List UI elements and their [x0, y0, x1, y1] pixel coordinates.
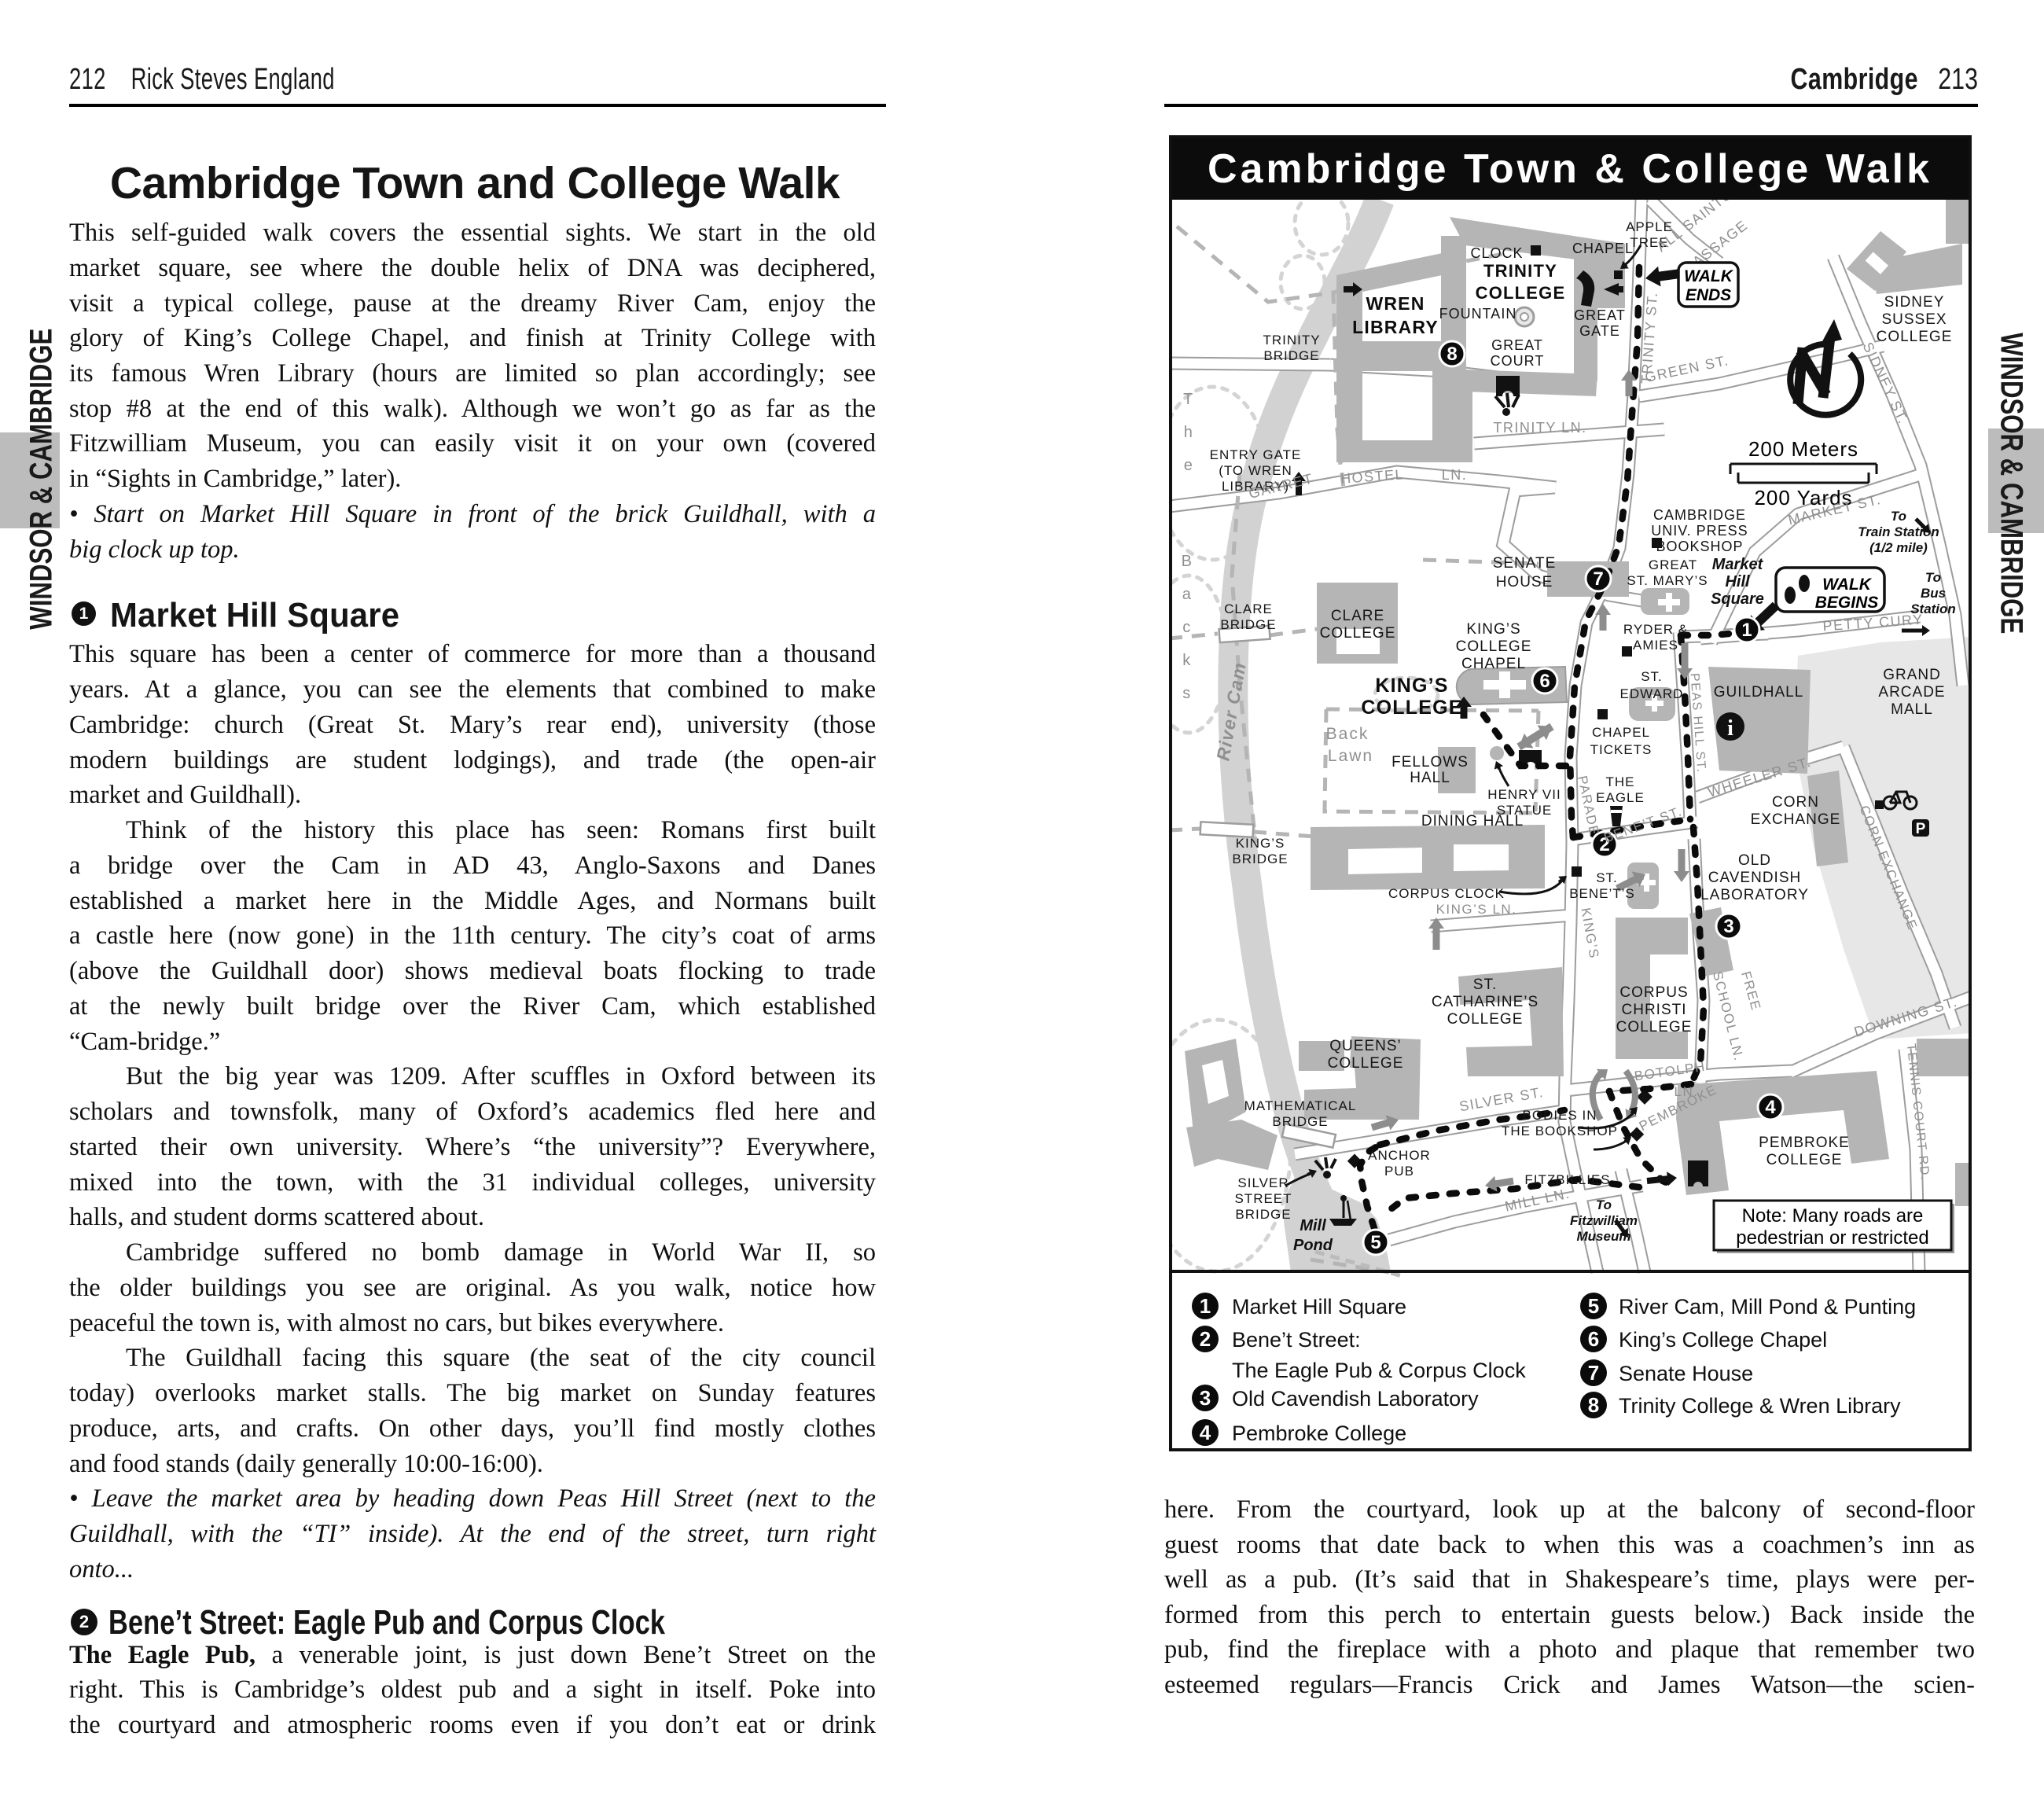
svg-text:3: 3: [1200, 1386, 1211, 1410]
svg-text:4: 4: [1200, 1421, 1211, 1444]
svg-text:GATE: GATE: [1579, 323, 1620, 339]
svg-text:CAMBRIDGE: CAMBRIDGE: [1653, 507, 1746, 523]
svg-text:Senate House: Senate House: [1619, 1362, 1753, 1385]
svg-text:Bene’t Street:: Bene’t Street:: [1232, 1328, 1361, 1352]
svg-text:BRIDGE: BRIDGE: [1220, 617, 1276, 632]
svg-text:CHAPEL: CHAPEL: [1572, 241, 1634, 256]
svg-text:MARKET ST.: MARKET ST.: [1787, 491, 1883, 528]
svg-text:CORPUS CLOCK: CORPUS CLOCK: [1388, 886, 1505, 901]
svg-text:LN.: LN.: [1442, 467, 1468, 483]
svg-text:TRINITY LN.: TRINITY LN.: [1493, 420, 1586, 436]
svg-text:Lawn: Lawn: [1328, 747, 1373, 765]
svg-text:(1/2 mile): (1/2 mile): [1869, 540, 1928, 555]
svg-text:LABORATORY: LABORATORY: [1700, 887, 1809, 903]
svg-text:CLARE: CLARE: [1331, 608, 1384, 624]
svg-text:WALK: WALK: [1684, 267, 1734, 285]
svg-text:KING’S: KING’S: [1375, 675, 1448, 697]
svg-text:COLLEGE: COLLEGE: [1456, 638, 1532, 655]
svg-text:RYDER &: RYDER &: [1623, 622, 1688, 637]
svg-text:2: 2: [1200, 1327, 1211, 1351]
svg-text:EAGLE: EAGLE: [1596, 790, 1645, 805]
svg-text:GREEN ST.: GREEN ST.: [1644, 352, 1730, 385]
svg-text:COLLEGE: COLLEGE: [1616, 1019, 1693, 1035]
svg-text:KING’S: KING’S: [1466, 621, 1520, 638]
svg-text:BOTOLPH: BOTOLPH: [1634, 1059, 1707, 1084]
svg-text:WALK: WALK: [1822, 576, 1873, 594]
svg-text:SIDNEY: SIDNEY: [1884, 294, 1945, 311]
svg-text:COLLEGE: COLLEGE: [1476, 283, 1566, 303]
svg-text:COURT: COURT: [1491, 353, 1545, 369]
svg-text:ST. MARY’S: ST. MARY’S: [1627, 573, 1708, 588]
svg-text:CLOCK: CLOCK: [1470, 245, 1523, 261]
svg-text:Station: Station: [1910, 601, 1956, 616]
svg-text:EXCHANGE: EXCHANGE: [1751, 811, 1841, 828]
svg-text:ANCHOR: ANCHOR: [1368, 1148, 1431, 1163]
svg-text:CATHARINE’S: CATHARINE’S: [1432, 994, 1539, 1010]
svg-text:BENE’T ST.: BENE’T ST.: [1602, 804, 1685, 846]
svg-text:BRIDGE: BRIDGE: [1232, 851, 1288, 866]
svg-text:T: T: [1183, 391, 1194, 408]
svg-text:PEAS HILL ST.: PEAS HILL ST.: [1688, 673, 1708, 774]
svg-text:THE BOOKSHOP: THE BOOKSHOP: [1502, 1124, 1618, 1138]
svg-text:h: h: [1184, 424, 1194, 441]
svg-text:BRIDGE: BRIDGE: [1272, 1114, 1328, 1129]
svg-text:(TO WREN: (TO WREN: [1219, 463, 1292, 478]
svg-text:Hill: Hill: [1725, 573, 1750, 590]
svg-text:GREAT: GREAT: [1574, 307, 1626, 323]
svg-text:STATUE: STATUE: [1497, 803, 1553, 818]
svg-text:ENDS: ENDS: [1686, 286, 1731, 304]
svg-text:PEMBROKE: PEMBROKE: [1759, 1135, 1850, 1151]
svg-text:UNIV. PRESS: UNIV. PRESS: [1651, 523, 1748, 539]
svg-text:FELLOWS: FELLOWS: [1391, 754, 1469, 771]
svg-text:SUSSEX: SUSSEX: [1881, 311, 1947, 328]
svg-text:TRINITY: TRINITY: [1483, 261, 1557, 281]
svg-text:HOSTEL: HOSTEL: [1340, 466, 1404, 487]
svg-text:Market Hill Square: Market Hill Square: [1232, 1295, 1406, 1319]
svg-text:HENRY VII: HENRY VII: [1487, 787, 1561, 802]
svg-text:8: 8: [1588, 1393, 1599, 1417]
svg-text:pedestrian or restricted: pedestrian or restricted: [1736, 1227, 1928, 1249]
svg-text:ST.: ST.: [1596, 870, 1618, 885]
svg-text:CLARE: CLARE: [1224, 601, 1273, 616]
svg-text:ST.: ST.: [1473, 977, 1497, 993]
svg-text:Pond: Pond: [1293, 1237, 1333, 1254]
svg-text:BENE’T’S: BENE’T’S: [1569, 886, 1635, 901]
svg-text:LIBRARY: LIBRARY: [1352, 317, 1439, 337]
svg-text:STREET: STREET: [1234, 1191, 1292, 1206]
svg-text:BRIDGE: BRIDGE: [1235, 1207, 1291, 1222]
svg-text:e: e: [1184, 457, 1194, 474]
svg-text:Note: Many roads are: Note: Many roads are: [1742, 1205, 1924, 1227]
svg-text:6: 6: [1588, 1327, 1599, 1351]
svg-text:To: To: [1925, 570, 1941, 585]
svg-text:CHAPEL: CHAPEL: [1461, 656, 1526, 672]
svg-text:COLLEGE: COLLEGE: [1766, 1152, 1843, 1168]
svg-text:CORN EXCHANGE: CORN EXCHANGE: [1857, 804, 1921, 932]
svg-text:TICKETS: TICKETS: [1590, 742, 1652, 757]
svg-text:COLLEGE: COLLEGE: [1328, 1055, 1404, 1072]
svg-text:Back: Back: [1326, 725, 1369, 743]
svg-text:COLLEGE: COLLEGE: [1320, 625, 1396, 642]
svg-text:QUEENS’: QUEENS’: [1329, 1038, 1401, 1054]
svg-text:BODIES IN: BODIES IN: [1523, 1108, 1597, 1123]
svg-text:CAVENDISH: CAVENDISH: [1708, 870, 1801, 886]
svg-text:FOUNTAIN: FOUNTAIN: [1439, 306, 1517, 322]
svg-text:COLLEGE: COLLEGE: [1361, 697, 1462, 719]
svg-text:THE: THE: [1606, 774, 1635, 789]
svg-text:FREE: FREE: [1738, 969, 1763, 1013]
svg-text:Bus: Bus: [1921, 586, 1946, 601]
svg-text:PETTY CURY: PETTY CURY: [1822, 612, 1924, 634]
svg-text:River Cam: River Cam: [1212, 660, 1250, 763]
svg-text:KING’S LN.: KING’S LN.: [1436, 902, 1517, 917]
svg-text:Cambridge Town & College Walk: Cambridge Town & College Walk: [1208, 146, 1932, 192]
svg-text:KING’S: KING’S: [1578, 907, 1601, 960]
svg-text:a: a: [1182, 586, 1193, 603]
svg-text:Trinity College & Wren Library: Trinity College & Wren Library: [1619, 1394, 1901, 1418]
svg-text:BOOKSHOP: BOOKSHOP: [1656, 539, 1743, 554]
svg-text:SCHOOL LN.: SCHOOL LN.: [1710, 969, 1747, 1062]
svg-text:FITZBILLIES: FITZBILLIES: [1524, 1172, 1610, 1187]
svg-text:To: To: [1596, 1197, 1612, 1212]
svg-text:EDWARD: EDWARD: [1620, 686, 1684, 701]
svg-text:GREAT: GREAT: [1649, 557, 1697, 572]
svg-text:The Eagle Pub & Corpus Clock: The Eagle Pub & Corpus Clock: [1232, 1359, 1526, 1382]
svg-text:7: 7: [1588, 1361, 1599, 1385]
svg-text:MALL: MALL: [1891, 701, 1933, 718]
svg-text:TRINITY: TRINITY: [1263, 333, 1320, 348]
svg-text:GREAT: GREAT: [1491, 337, 1543, 353]
svg-text:CHRISTI: CHRISTI: [1622, 1002, 1687, 1018]
svg-text:CHAPEL: CHAPEL: [1592, 725, 1650, 740]
svg-text:GUILDHALL: GUILDHALL: [1714, 684, 1804, 701]
svg-text:King’s College Chapel: King’s College Chapel: [1619, 1328, 1827, 1352]
svg-text:MATHEMATICAL: MATHEMATICAL: [1244, 1098, 1357, 1113]
svg-text:B: B: [1182, 553, 1193, 570]
svg-text:1: 1: [1200, 1294, 1211, 1318]
svg-text:Square: Square: [1711, 590, 1764, 608]
svg-text:OLD: OLD: [1738, 852, 1771, 869]
svg-text:BRIDGE: BRIDGE: [1263, 348, 1319, 363]
svg-text:COLLEGE: COLLEGE: [1447, 1011, 1524, 1028]
svg-text:Market: Market: [1712, 556, 1764, 573]
svg-text:AMIES: AMIES: [1633, 638, 1678, 653]
svg-text:ST.: ST.: [1641, 669, 1663, 684]
svg-text:s: s: [1182, 685, 1192, 702]
svg-text:SIDNEY ST.: SIDNEY ST.: [1860, 340, 1912, 427]
svg-text:Fitzwilliam: Fitzwilliam: [1570, 1213, 1638, 1228]
svg-text:Train Station: Train Station: [1858, 524, 1939, 539]
svg-text:Museum: Museum: [1577, 1229, 1631, 1244]
svg-text:c: c: [1182, 619, 1192, 636]
svg-text:CORN: CORN: [1772, 794, 1819, 811]
svg-text:ARCADE: ARCADE: [1878, 684, 1945, 701]
svg-text:CORPUS: CORPUS: [1619, 984, 1688, 1001]
svg-text:DOWNING ST.: DOWNING ST.: [1852, 994, 1959, 1040]
svg-text:WHEELER ST.: WHEELER ST.: [1706, 754, 1813, 800]
svg-text:SILVER: SILVER: [1237, 1175, 1289, 1190]
svg-text:BEGINS: BEGINS: [1815, 594, 1879, 612]
svg-text:HOUSE: HOUSE: [1496, 574, 1553, 590]
svg-text:SENATE: SENATE: [1493, 555, 1557, 572]
svg-text:WREN: WREN: [1366, 293, 1425, 314]
svg-text:ENTRY GATE: ENTRY GATE: [1210, 447, 1302, 462]
svg-text:To: To: [1891, 509, 1906, 524]
svg-text:PUB: PUB: [1384, 1164, 1414, 1179]
svg-text:Pembroke College: Pembroke College: [1232, 1422, 1406, 1445]
svg-text:k: k: [1182, 652, 1192, 669]
svg-text:KING’S: KING’S: [1236, 836, 1285, 851]
svg-text:River Cam, Mill Pond & Punting: River Cam, Mill Pond & Punting: [1619, 1295, 1916, 1319]
svg-text:Mill: Mill: [1300, 1217, 1326, 1234]
svg-text:Old Cavendish Laboratory: Old Cavendish Laboratory: [1232, 1387, 1479, 1411]
svg-text:MILL LN.: MILL LN.: [1503, 1186, 1572, 1215]
svg-text:COLLEGE: COLLEGE: [1877, 329, 1953, 345]
svg-text:TENNIS COURT RD.: TENNIS COURT RD.: [1904, 1043, 1932, 1181]
svg-text:5: 5: [1588, 1294, 1599, 1318]
svg-text:GRAND: GRAND: [1883, 667, 1941, 683]
svg-text:PARADE: PARADE: [1575, 774, 1602, 837]
svg-text:HALL: HALL: [1410, 770, 1450, 786]
